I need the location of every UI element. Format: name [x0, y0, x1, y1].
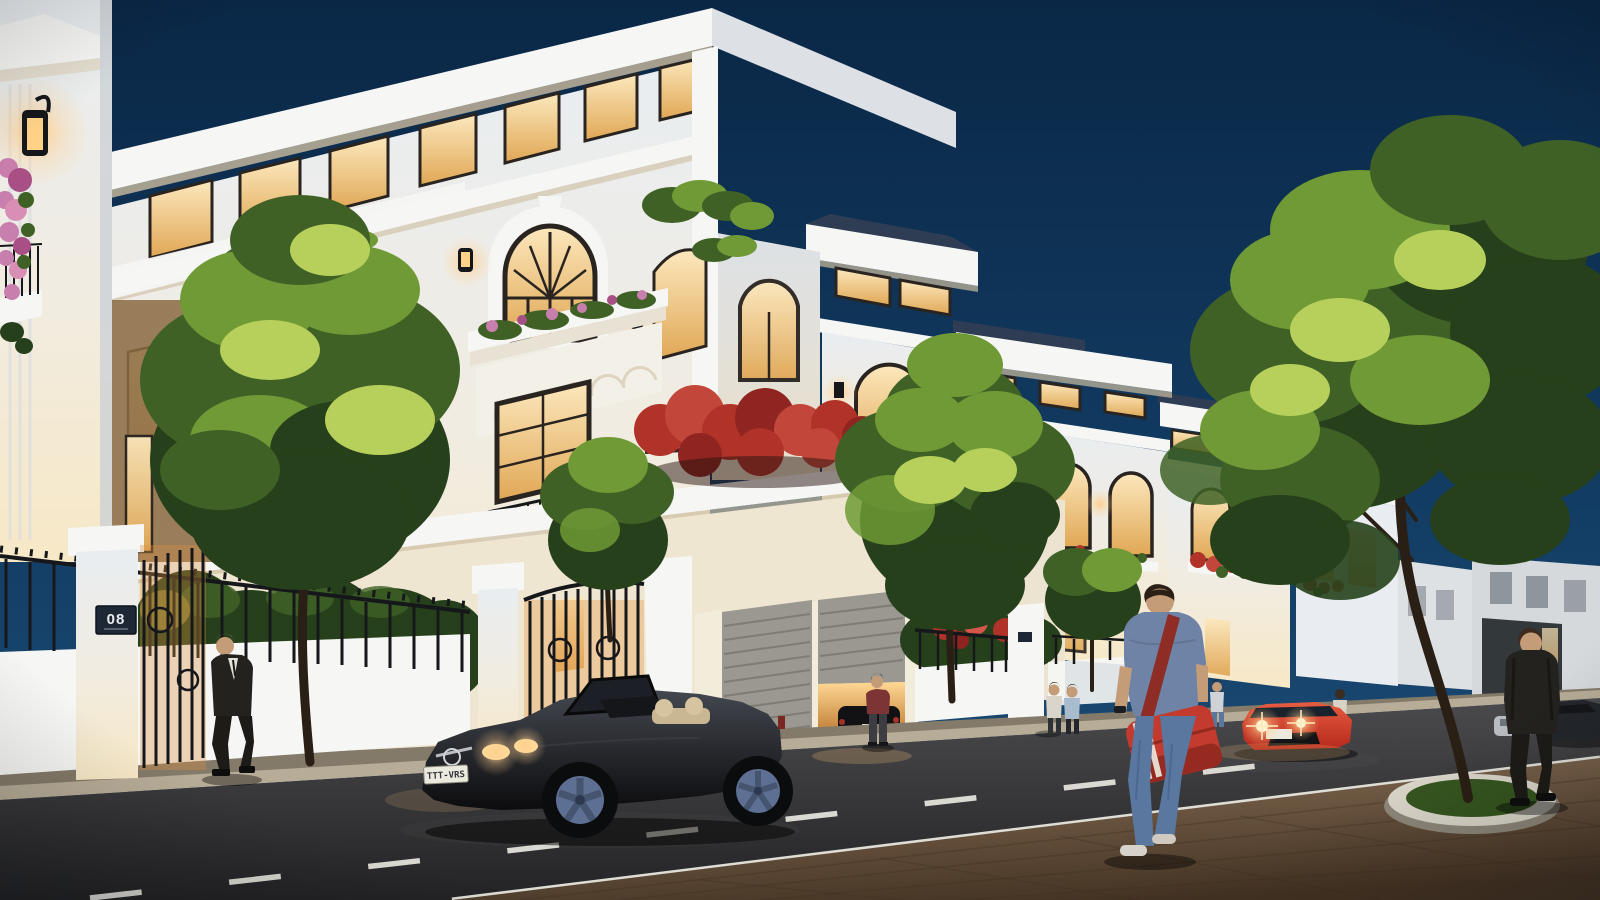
villa-street-render: 08 [0, 0, 1600, 900]
vignette-overlay [0, 0, 1600, 900]
scene-canvas: 08 [0, 0, 1600, 900]
